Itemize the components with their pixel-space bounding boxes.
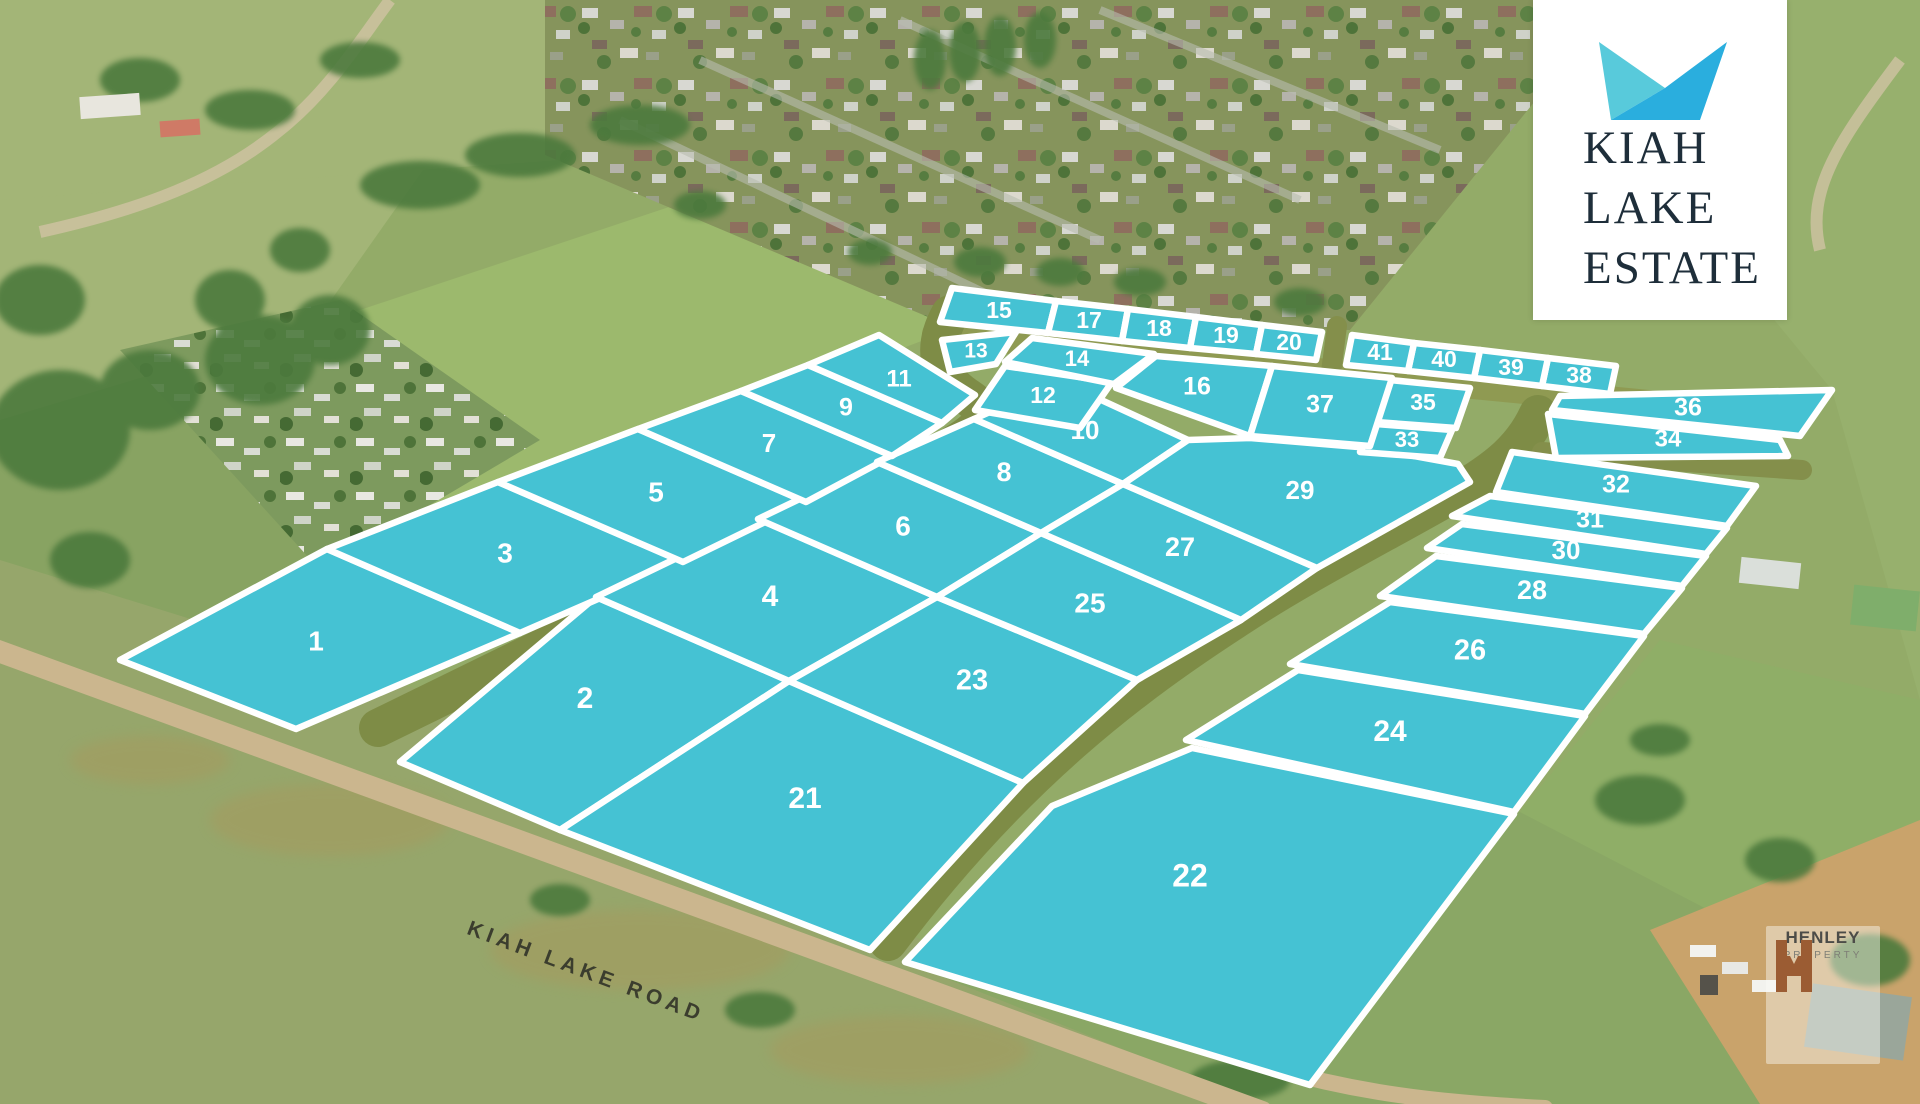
logo-line-2: LAKE	[1583, 178, 1761, 238]
lot-39[interactable]: 39	[1474, 350, 1548, 386]
lot-17[interactable]: 17	[1048, 301, 1128, 341]
lot-20[interactable]: 20	[1256, 325, 1322, 360]
lot-40-shape[interactable]	[1408, 343, 1480, 378]
lot-20-shape[interactable]	[1256, 325, 1322, 360]
lot-18-shape[interactable]	[1122, 309, 1196, 348]
road-north-entry	[1331, 326, 1337, 372]
logo-line-1: KIAH	[1583, 118, 1761, 178]
lot-38[interactable]: 38	[1542, 358, 1616, 394]
henley-h-icon	[1766, 938, 1822, 994]
lot-19[interactable]: 19	[1190, 317, 1262, 354]
logo-line-3: ESTATE	[1583, 238, 1761, 298]
lot-40[interactable]: 40	[1408, 343, 1480, 378]
estate-logo: KIAH LAKE ESTATE	[1533, 0, 1787, 320]
lot-38-shape[interactable]	[1542, 358, 1616, 394]
lot-39-shape[interactable]	[1474, 350, 1548, 386]
logo-wordmark: KIAH LAKE ESTATE	[1583, 118, 1761, 298]
estate-masterplan: 1234567891011121314151617181920212223242…	[0, 0, 1920, 1104]
lot-19-shape[interactable]	[1190, 317, 1262, 354]
lot-41-shape[interactable]	[1346, 335, 1414, 371]
lot-17-shape[interactable]	[1048, 301, 1128, 341]
lot-37[interactable]: 37	[1250, 366, 1392, 446]
henley-watermark: HENLEY PROPERTY	[1766, 926, 1880, 1064]
lot-41[interactable]: 41	[1346, 335, 1414, 371]
lot-37-shape[interactable]	[1250, 366, 1392, 446]
lot-18[interactable]: 18	[1122, 309, 1196, 348]
